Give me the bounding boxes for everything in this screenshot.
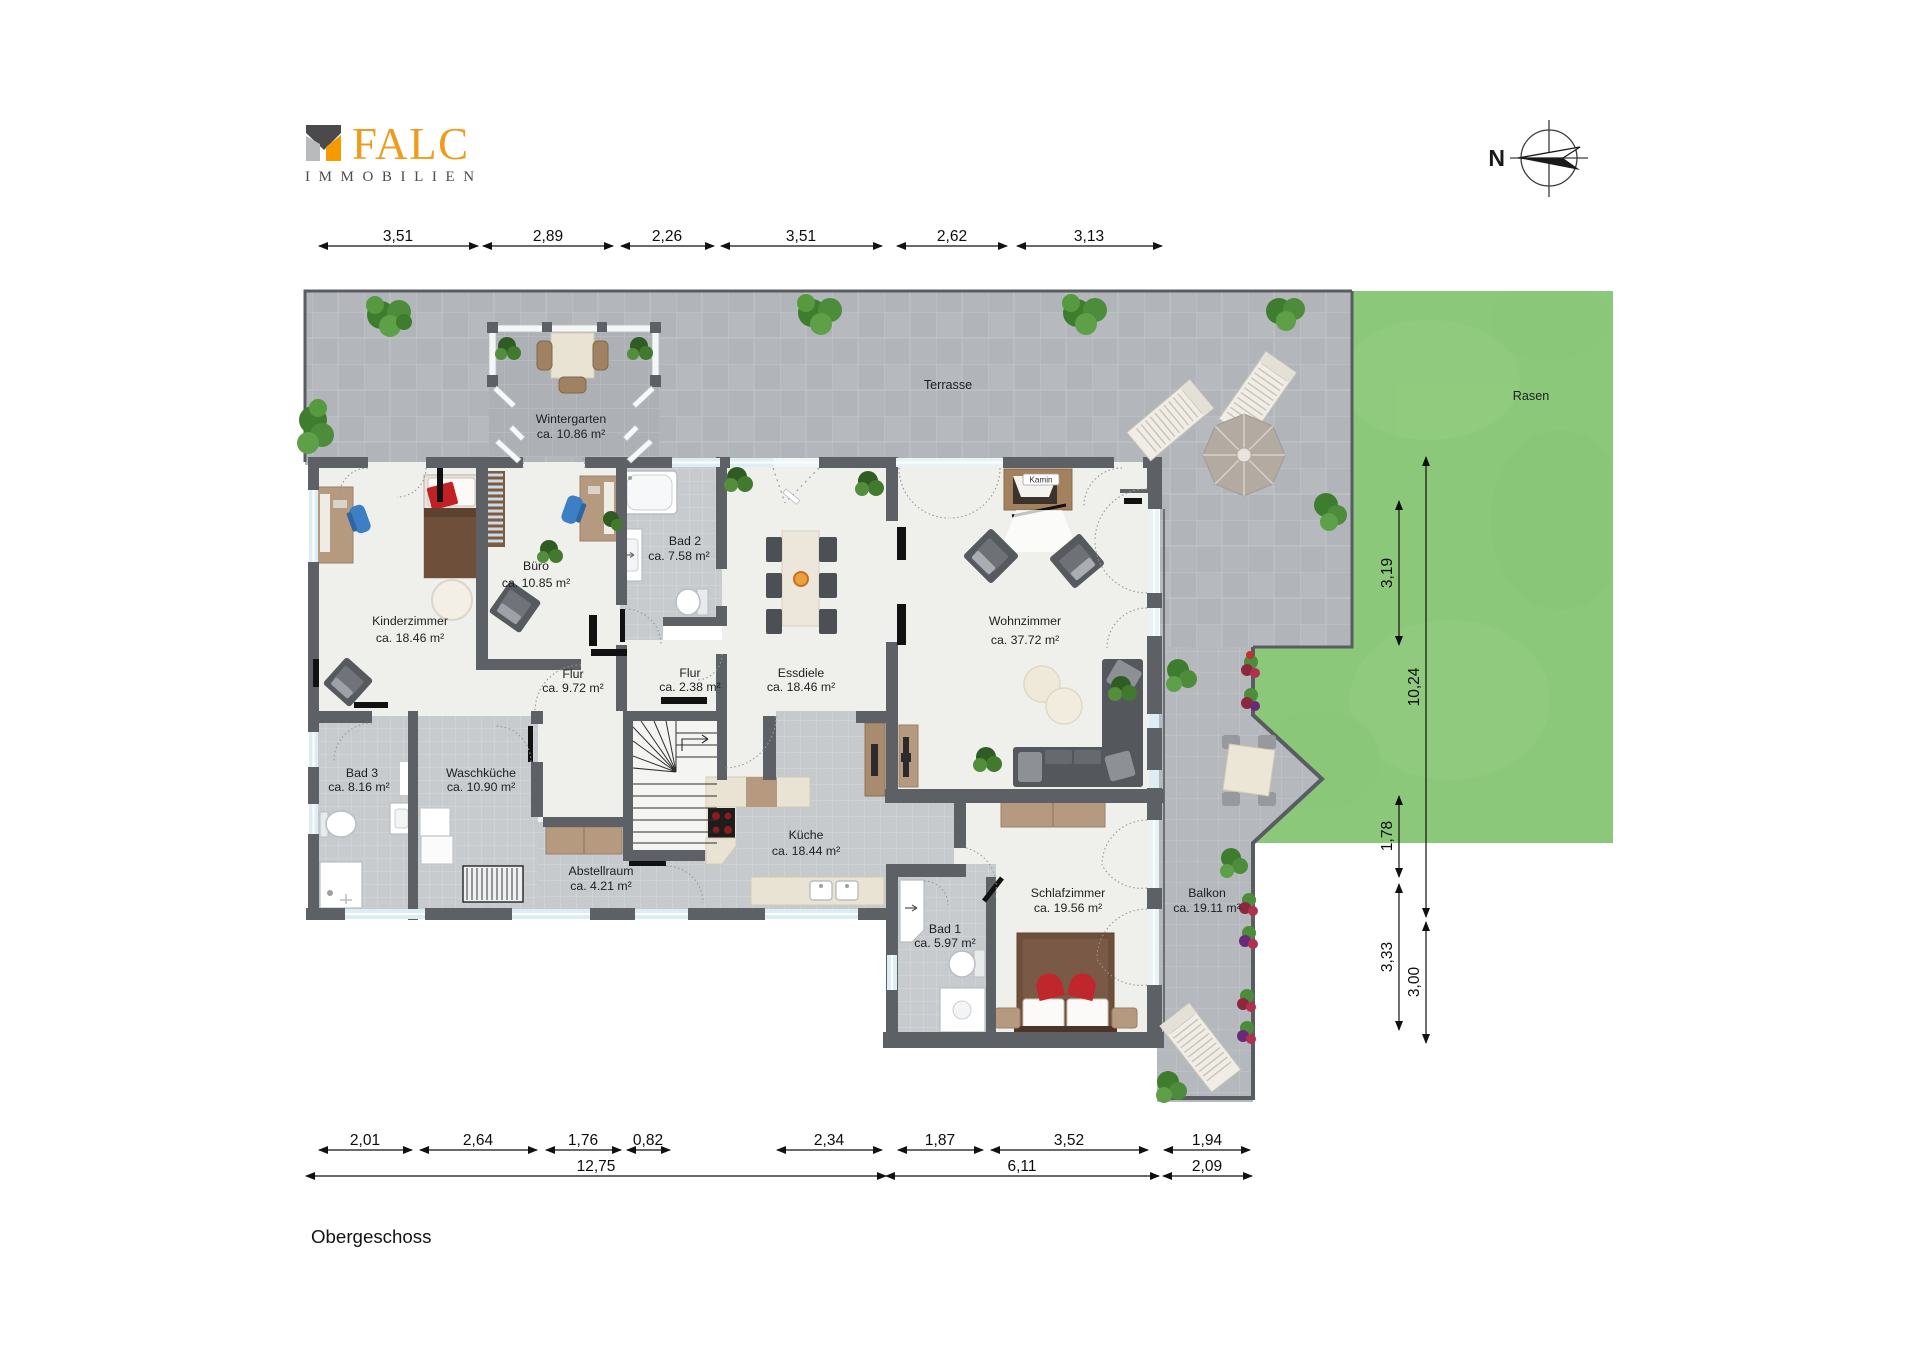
svg-text:Kamin: Kamin bbox=[1029, 476, 1053, 485]
svg-text:Waschküche: Waschküche bbox=[446, 766, 516, 780]
svg-text:2,64: 2,64 bbox=[463, 1132, 494, 1149]
svg-text:3,19: 3,19 bbox=[1379, 558, 1396, 588]
svg-text:ca. 37.72 m²: ca. 37.72 m² bbox=[991, 633, 1059, 647]
svg-text:10,24: 10,24 bbox=[1406, 667, 1423, 706]
svg-text:ca. 9.72 m²: ca. 9.72 m² bbox=[542, 681, 604, 695]
svg-text:ca. 4.21 m²: ca. 4.21 m² bbox=[570, 879, 632, 893]
svg-text:Wintergarten: Wintergarten bbox=[536, 412, 607, 426]
svg-text:2,89: 2,89 bbox=[533, 228, 563, 245]
svg-text:ca. 18.44 m²: ca. 18.44 m² bbox=[772, 844, 840, 858]
svg-text:1,87: 1,87 bbox=[925, 1132, 955, 1149]
svg-text:ca. 18.46 m²: ca. 18.46 m² bbox=[376, 631, 444, 645]
svg-text:12,75: 12,75 bbox=[577, 1158, 616, 1175]
svg-text:3,13: 3,13 bbox=[1074, 228, 1104, 245]
svg-text:ca. 19.56 m²: ca. 19.56 m² bbox=[1034, 901, 1102, 915]
svg-text:Balkon: Balkon bbox=[1188, 886, 1226, 900]
svg-text:3,52: 3,52 bbox=[1054, 1132, 1084, 1149]
svg-text:Obergeschoss: Obergeschoss bbox=[311, 1226, 432, 1247]
svg-text:Essdiele: Essdiele bbox=[778, 666, 825, 680]
svg-text:1,76: 1,76 bbox=[568, 1132, 598, 1149]
svg-text:2,26: 2,26 bbox=[652, 228, 682, 245]
svg-text:3,51: 3,51 bbox=[786, 228, 816, 245]
svg-text:0,82: 0,82 bbox=[633, 1132, 663, 1149]
svg-text:Terrasse: Terrasse bbox=[924, 378, 972, 392]
svg-text:2,09: 2,09 bbox=[1192, 1158, 1222, 1175]
svg-text:ca. 19.11 m²: ca. 19.11 m² bbox=[1173, 901, 1240, 915]
svg-text:Küche: Küche bbox=[789, 828, 824, 842]
svg-text:ca. 18.46 m²: ca. 18.46 m² bbox=[767, 680, 835, 694]
svg-text:3,33: 3,33 bbox=[1379, 942, 1396, 972]
svg-text:6,11: 6,11 bbox=[1007, 1158, 1036, 1175]
svg-text:Abstellraum: Abstellraum bbox=[569, 864, 634, 878]
svg-text:2,62: 2,62 bbox=[937, 228, 967, 245]
svg-text:ca. 8.16 m²: ca. 8.16 m² bbox=[328, 780, 390, 794]
svg-text:Rasen: Rasen bbox=[1513, 389, 1549, 403]
svg-text:Bad 3: Bad 3 bbox=[346, 766, 378, 780]
svg-text:N: N bbox=[1488, 145, 1505, 171]
svg-text:2,01: 2,01 bbox=[350, 1132, 380, 1149]
svg-text:ca. 2.38 m²: ca. 2.38 m² bbox=[659, 680, 721, 694]
svg-text:ca. 10.85 m²: ca. 10.85 m² bbox=[502, 576, 570, 590]
svg-text:ca. 10.90 m²: ca. 10.90 m² bbox=[447, 780, 515, 794]
svg-text:IMMOBILIEN: IMMOBILIEN bbox=[305, 169, 483, 185]
svg-text:3,51: 3,51 bbox=[383, 228, 413, 245]
svg-text:Büro: Büro bbox=[523, 559, 549, 573]
svg-text:Schlafzimmer: Schlafzimmer bbox=[1031, 886, 1105, 900]
svg-text:Kinderzimmer: Kinderzimmer bbox=[372, 614, 448, 628]
svg-text:Bad 1: Bad 1 bbox=[929, 922, 961, 936]
svg-text:3,00: 3,00 bbox=[1406, 967, 1423, 998]
svg-text:Wohnzimmer: Wohnzimmer bbox=[989, 614, 1061, 628]
svg-text:ca. 7.58 m²: ca. 7.58 m² bbox=[648, 549, 710, 563]
svg-text:1,94: 1,94 bbox=[1192, 1132, 1223, 1149]
svg-text:ca. 10.86 m²: ca. 10.86 m² bbox=[537, 427, 605, 441]
svg-text:Flur: Flur bbox=[679, 666, 700, 680]
svg-text:FALC: FALC bbox=[352, 119, 470, 169]
svg-text:2,34: 2,34 bbox=[814, 1132, 845, 1149]
svg-text:1,78: 1,78 bbox=[1379, 821, 1396, 851]
svg-text:Bad 2: Bad 2 bbox=[669, 534, 701, 548]
svg-text:ca. 5.97 m²: ca. 5.97 m² bbox=[914, 936, 976, 950]
svg-text:Flur: Flur bbox=[562, 667, 583, 681]
